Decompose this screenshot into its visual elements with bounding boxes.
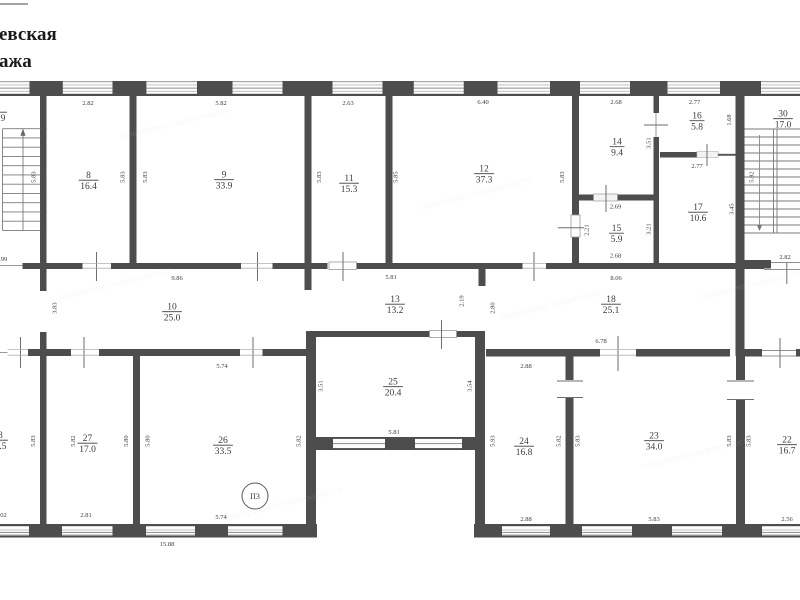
svg-text:0.99: 0.99 [0,256,7,263]
svg-text:3.83: 3.83 [52,302,59,313]
svg-text:2.56: 2.56 [781,516,793,523]
svg-text:17.0: 17.0 [79,445,96,455]
svg-text:5.92: 5.92 [749,171,756,182]
svg-text:30: 30 [778,110,788,120]
svg-text:5.83: 5.83 [31,171,38,182]
svg-text:2.88: 2.88 [520,363,531,370]
svg-text:14: 14 [612,138,622,148]
svg-text:16.4: 16.4 [80,182,97,192]
svg-text:24: 24 [519,437,529,447]
svg-text:16: 16 [692,112,702,122]
svg-text:28: 28 [0,431,3,441]
svg-text:6.78: 6.78 [595,338,606,345]
svg-text:21.5: 21.5 [0,442,7,452]
svg-text:13: 13 [390,295,400,305]
svg-text:5.85: 5.85 [393,171,400,182]
svg-text:2.77: 2.77 [691,163,703,170]
svg-text:22: 22 [782,436,792,446]
svg-text:2.21: 2.21 [584,224,591,235]
svg-text:33.9: 33.9 [216,182,233,192]
svg-text:гипермаркет недвижимости: гипермаркет недвижимости [698,264,800,302]
svg-text:10.6: 10.6 [690,214,707,224]
svg-text:10: 10 [167,303,177,313]
svg-text:3.54: 3.54 [467,380,474,392]
svg-text:2.82: 2.82 [779,254,790,261]
svg-text:5.83: 5.83 [559,171,566,182]
svg-text:5.81: 5.81 [385,274,396,281]
svg-text:20.4: 20.4 [385,389,402,399]
svg-text:гипермаркет недвижимости: гипермаркет недвижимости [58,264,172,302]
svg-text:11: 11 [344,174,353,184]
svg-text:5.83: 5.83 [120,171,127,182]
svg-text:8.06: 8.06 [610,275,622,282]
svg-text:5.83: 5.83 [648,516,659,523]
svg-text:ажа: ажа [0,51,32,72]
svg-text:12: 12 [479,165,489,175]
svg-text:2.68: 2.68 [610,253,621,260]
svg-text:2.63: 2.63 [342,100,353,107]
svg-text:17: 17 [693,203,703,213]
svg-text:15.88: 15.88 [160,541,175,548]
svg-text:16.7: 16.7 [779,447,796,457]
svg-text:2.81: 2.81 [80,512,91,519]
svg-text:26: 26 [218,436,228,446]
svg-text:5.82: 5.82 [296,435,303,446]
svg-text:13.9: 13.9 [0,114,6,124]
svg-text:5.93: 5.93 [490,435,497,446]
svg-text:2.80: 2.80 [490,302,497,313]
svg-text:2.77: 2.77 [689,99,701,106]
svg-text:2.68: 2.68 [610,99,621,106]
svg-text:23: 23 [649,432,659,442]
svg-text:3.02: 3.02 [0,512,7,519]
svg-text:9: 9 [222,171,227,181]
svg-text:5.83: 5.83 [30,435,37,446]
svg-text:5.9: 5.9 [611,235,623,245]
svg-text:9.86: 9.86 [171,275,183,282]
svg-text:13.2: 13.2 [387,306,404,316]
svg-text:9.4: 9.4 [611,149,623,159]
svg-text:3.51: 3.51 [646,137,653,148]
svg-text:5.74: 5.74 [215,514,227,521]
svg-text:25: 25 [388,378,398,388]
svg-text:16.8: 16.8 [516,448,533,458]
svg-text:5.8: 5.8 [691,123,703,133]
svg-text:8: 8 [86,171,91,181]
svg-text:5.82: 5.82 [556,435,563,446]
svg-text:5.83: 5.83 [575,435,582,446]
svg-text:5.83: 5.83 [316,171,323,182]
svg-text:2.82: 2.82 [82,100,93,107]
svg-text:15.3: 15.3 [341,185,358,195]
svg-text:3.45: 3.45 [729,203,736,214]
svg-text:5.74: 5.74 [216,363,228,370]
svg-text:27: 27 [83,434,93,444]
svg-text:34.0: 34.0 [646,443,663,453]
svg-text:5.81: 5.81 [388,429,399,436]
svg-text:3.51: 3.51 [318,380,325,391]
svg-text:2.88: 2.88 [520,516,531,523]
svg-text:5.83: 5.83 [142,171,149,182]
svg-text:5.80: 5.80 [145,435,152,446]
svg-text:гипермаркет недвижимости: гипермаркет недвижимости [228,484,342,522]
svg-text:2.19: 2.19 [459,295,466,306]
svg-text:25.1: 25.1 [603,306,620,316]
svg-text:6.40: 6.40 [477,99,488,106]
svg-text:25.0: 25.0 [164,314,181,324]
svg-text:3.21: 3.21 [646,223,653,234]
svg-text:1.68: 1.68 [726,114,733,125]
svg-text:18: 18 [606,295,616,305]
svg-text:2.69: 2.69 [610,204,621,211]
svg-text:евская: евская [0,24,57,45]
svg-text:5.82: 5.82 [70,435,77,446]
svg-text:15: 15 [612,224,622,234]
svg-text:33.5: 33.5 [215,447,232,457]
svg-text:5.80: 5.80 [123,435,130,446]
svg-text:П3: П3 [250,492,260,501]
svg-text:гипермаркет недвижимости: гипермаркет недвижимости [498,284,612,322]
svg-text:17.0: 17.0 [775,121,792,131]
